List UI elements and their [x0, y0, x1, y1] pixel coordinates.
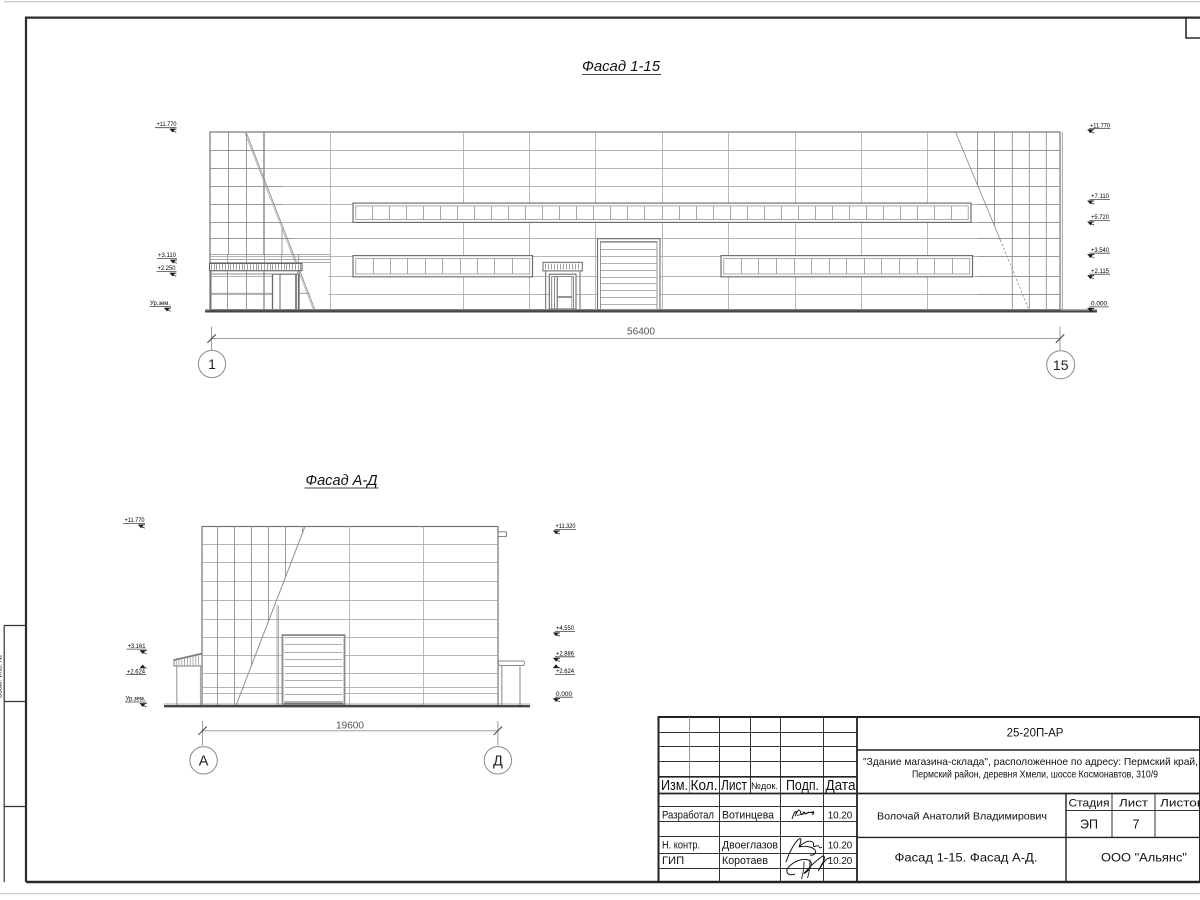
svg-text:Коротаев: Коротаев [722, 855, 768, 867]
svg-text:ООО "Альянс": ООО "Альянс" [1101, 853, 1187, 865]
svg-text:Вотинцева: Вотинцева [722, 810, 775, 822]
svg-text:Дата: Дата [826, 778, 857, 794]
svg-text:Лист: Лист [1119, 798, 1148, 810]
svg-text:Н. контр.: Н. контр. [662, 840, 700, 852]
svg-text:"Здание магазина-склада", расп: "Здание магазина-склада", расположенное … [863, 757, 1198, 768]
svg-text:Фасад 1-15: Фасад 1-15 [582, 58, 661, 75]
svg-text:10.20: 10.20 [828, 811, 853, 822]
svg-text:10.20: 10.20 [828, 856, 853, 867]
svg-text:Взам. инв. №: Взам. инв. № [0, 655, 4, 698]
svg-text:Фасад 1-15. Фасад А-Д.: Фасад 1-15. Фасад А-Д. [895, 851, 1038, 865]
svg-text:1: 1 [208, 356, 216, 372]
svg-text:Стадия: Стадия [1069, 798, 1110, 810]
svg-text:Д: Д [493, 754, 503, 770]
svg-text:+11.770: +11.770 [125, 517, 146, 524]
svg-text:№док.: №док. [751, 781, 778, 792]
svg-text:Лист: Лист [721, 778, 747, 794]
svg-text:10.20: 10.20 [828, 841, 853, 852]
svg-text:Кол.: Кол. [691, 778, 718, 794]
svg-text:+3.110: +3.110 [158, 252, 177, 259]
svg-text:Ур.зем.: Ур.зем. [150, 300, 170, 307]
svg-text:56400: 56400 [627, 327, 656, 338]
svg-text:15: 15 [1053, 357, 1069, 373]
svg-text:Подп.: Подп. [786, 778, 819, 794]
svg-text:25-20П-АР: 25-20П-АР [1007, 728, 1064, 740]
svg-text:Волочай Анатолий Владимирович: Волочай Анатолий Владимирович [877, 811, 1047, 823]
svg-text:Двоеглазов: Двоеглазов [722, 840, 778, 852]
svg-text:19600: 19600 [336, 721, 365, 732]
svg-text:Изм.: Изм. [661, 778, 688, 794]
svg-text:Пермский район, деревня Хмели,: Пермский район, деревня Хмели, шоссе Кос… [912, 770, 1158, 781]
svg-text:Разработал: Разработал [662, 810, 714, 822]
svg-text:А: А [199, 754, 209, 770]
svg-text:ЭП: ЭП [1080, 818, 1098, 832]
svg-text:+11.770: +11.770 [157, 121, 178, 128]
svg-text:Листов: Листов [1160, 798, 1200, 810]
svg-text:ГИП: ГИП [662, 855, 684, 867]
svg-text:Фасад А-Д: Фасад А-Д [306, 472, 378, 489]
svg-text:7: 7 [1133, 818, 1140, 832]
svg-text:+2.250: +2.250 [158, 265, 177, 272]
